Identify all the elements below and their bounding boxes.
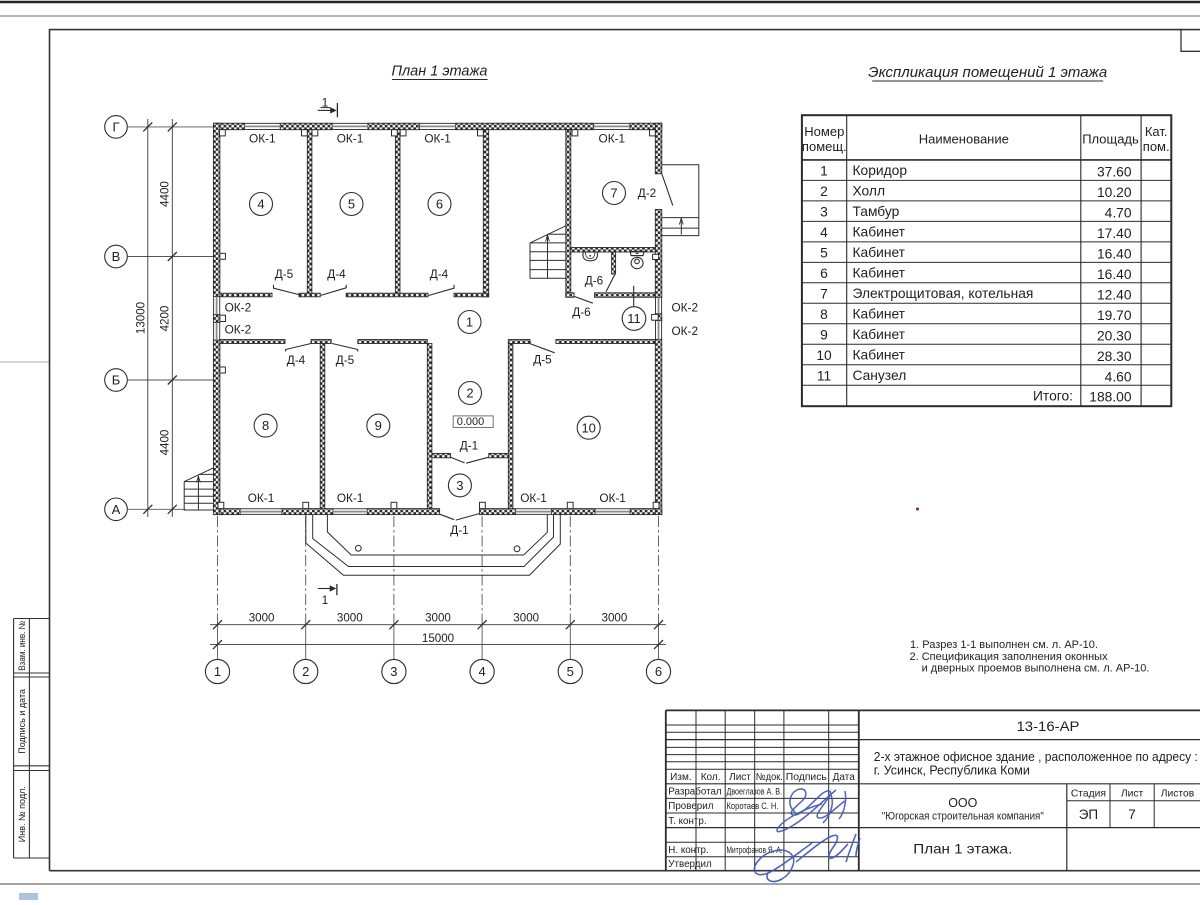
svg-text:9: 9 <box>375 418 382 433</box>
svg-text:Б: Б <box>112 373 121 388</box>
svg-text:1. Разрез 1-1 выполнен см. л.: 1. Разрез 1-1 выполнен см. л. АР-10. <box>910 639 1098 651</box>
svg-text:Кабинет: Кабинет <box>853 225 906 240</box>
svg-text:Номер: Номер <box>804 124 844 139</box>
svg-text:ОК-2: ОК-2 <box>225 323 252 337</box>
svg-text:Кол.: Кол. <box>701 772 721 783</box>
svg-text:3000: 3000 <box>513 612 539 625</box>
svg-text:Д-6: Д-6 <box>572 305 591 319</box>
svg-text:8: 8 <box>262 418 269 433</box>
svg-text:План 1 этажа: План 1 этажа <box>392 64 488 80</box>
svg-text:Митрофанов Я. А.: Митрофанов Я. А. <box>727 845 783 855</box>
svg-text:ОК-1: ОК-1 <box>520 491 547 505</box>
svg-text:2: 2 <box>820 184 828 199</box>
svg-text:5: 5 <box>567 664 574 679</box>
svg-text:3000: 3000 <box>425 612 451 625</box>
svg-text:Листов: Листов <box>1161 788 1195 799</box>
svg-text:Площадь: Площадь <box>1082 132 1139 147</box>
svg-text:Холл: Холл <box>853 184 886 199</box>
svg-text:10: 10 <box>816 348 832 363</box>
svg-text:Д-1: Д-1 <box>460 439 478 453</box>
svg-text:3000: 3000 <box>337 612 363 625</box>
svg-text:3000: 3000 <box>249 612 275 625</box>
svg-text:4400: 4400 <box>159 181 172 207</box>
svg-text:13000: 13000 <box>135 302 148 334</box>
svg-text:Экспликация помещений 1 этажа: Экспликация помещений 1 этажа <box>868 64 1107 81</box>
svg-text:16.40: 16.40 <box>1097 246 1132 261</box>
svg-text:188.00: 188.00 <box>1089 390 1132 405</box>
svg-text:4: 4 <box>257 197 264 212</box>
svg-text:4.70: 4.70 <box>1105 205 1132 220</box>
svg-text:Кабинет: Кабинет <box>853 327 906 342</box>
svg-text:Н. контр.: Н. контр. <box>668 845 708 856</box>
svg-text:15000: 15000 <box>422 632 454 645</box>
svg-text:6: 6 <box>820 266 828 281</box>
svg-text:37.60: 37.60 <box>1097 164 1132 179</box>
svg-text:Д-4: Д-4 <box>430 267 449 281</box>
svg-text:Итого:: Итого: <box>1033 388 1073 403</box>
svg-text:В: В <box>112 249 121 264</box>
svg-text:помещ.: помещ. <box>802 139 847 154</box>
svg-text:ОК-1: ОК-1 <box>337 491 364 505</box>
svg-text:Стадия: Стадия <box>1071 788 1106 799</box>
svg-text:План 1 этажа.: План 1 этажа. <box>913 840 1012 856</box>
svg-text:1: 1 <box>466 315 473 330</box>
svg-text:Инв. № подл.: Инв. № подл. <box>17 786 27 842</box>
svg-text:"Югорская строительная компани: "Югорская строительная компания" <box>882 811 1044 823</box>
svg-text:А: А <box>112 502 121 517</box>
svg-text:20.30: 20.30 <box>1097 328 1132 343</box>
svg-text:Двоеглазов А. В.: Двоеглазов А. В. <box>727 787 783 797</box>
svg-text:11: 11 <box>627 311 641 326</box>
svg-text:6: 6 <box>436 197 443 212</box>
svg-text:Подпись: Подпись <box>786 772 827 783</box>
svg-text:Дата: Дата <box>833 772 856 783</box>
svg-text:28.30: 28.30 <box>1097 349 1132 364</box>
svg-text:Взам. инв. №: Взам. инв. № <box>17 620 27 670</box>
svg-text:8: 8 <box>820 307 828 322</box>
svg-text:Д-6: Д-6 <box>585 274 604 288</box>
svg-text:Кабинет: Кабинет <box>853 307 906 322</box>
svg-text:1: 1 <box>820 164 828 179</box>
svg-text:7: 7 <box>1128 807 1136 822</box>
svg-text:Электрощитовая, котельная: Электрощитовая, котельная <box>853 286 1034 301</box>
svg-text:2: 2 <box>466 386 473 401</box>
svg-text:Д-5: Д-5 <box>275 267 294 281</box>
svg-text:4: 4 <box>478 664 485 679</box>
svg-text:17.40: 17.40 <box>1097 226 1132 241</box>
svg-text:7: 7 <box>610 186 617 201</box>
svg-text:Кабинет: Кабинет <box>853 266 906 281</box>
svg-text:19.70: 19.70 <box>1097 308 1132 323</box>
svg-text:№док.: №док. <box>756 772 783 783</box>
svg-text:г. Усинск, Республика Коми: г. Усинск, Республика Коми <box>874 763 1030 778</box>
svg-text:5: 5 <box>820 246 828 261</box>
svg-text:3: 3 <box>820 205 828 220</box>
svg-text:Подпись и дата: Подпись и дата <box>17 689 27 754</box>
svg-text:Лист: Лист <box>729 772 751 783</box>
svg-text:Изм.: Изм. <box>670 772 691 783</box>
svg-text:2. Спецификация заполнения око: 2. Спецификация заполнения оконных <box>910 651 1109 663</box>
svg-text:10.20: 10.20 <box>1097 185 1132 200</box>
svg-text:4200: 4200 <box>159 306 172 332</box>
svg-text:ОК-1: ОК-1 <box>249 132 276 146</box>
svg-text:6: 6 <box>655 664 662 679</box>
svg-text:Д-4: Д-4 <box>327 267 346 281</box>
svg-text:16.40: 16.40 <box>1097 267 1132 282</box>
svg-text:10: 10 <box>581 420 595 435</box>
svg-text:Санузел: Санузел <box>853 368 907 383</box>
svg-text:5: 5 <box>348 197 355 212</box>
svg-text:Г: Г <box>112 119 119 134</box>
svg-text:Кабинет: Кабинет <box>853 245 906 260</box>
svg-text:ОК-1: ОК-1 <box>248 491 275 505</box>
svg-text:3: 3 <box>390 664 397 679</box>
svg-text:Д-5: Д-5 <box>533 353 552 367</box>
svg-text:Д-5: Д-5 <box>336 353 355 367</box>
svg-text:Коридор: Коридор <box>853 163 908 178</box>
svg-text:ОК-2: ОК-2 <box>672 324 699 338</box>
svg-text:0.000: 0.000 <box>457 416 485 428</box>
svg-text:13-16-АР: 13-16-АР <box>1017 719 1080 734</box>
svg-text:4400: 4400 <box>159 430 172 456</box>
svg-text:3000: 3000 <box>602 612 628 625</box>
svg-text:4: 4 <box>820 225 828 240</box>
svg-text:Д-1: Д-1 <box>450 523 468 537</box>
svg-text:Д-4: Д-4 <box>287 353 306 367</box>
svg-text:Д-2: Д-2 <box>638 186 656 200</box>
svg-text:ЭП: ЭП <box>1079 807 1098 822</box>
svg-text:Тамбур: Тамбур <box>853 204 900 219</box>
svg-text:1: 1 <box>214 664 221 679</box>
svg-text:Коротаев С. Н.: Коротаев С. Н. <box>727 801 779 811</box>
svg-text:ОК-2: ОК-2 <box>225 301 252 315</box>
svg-text:ОК-1: ОК-1 <box>599 491 626 505</box>
svg-text:Кабинет: Кабинет <box>853 348 906 363</box>
svg-text:11: 11 <box>817 368 831 383</box>
svg-text:Проверил: Проверил <box>668 801 713 812</box>
svg-text:ОК-1: ОК-1 <box>424 132 451 146</box>
svg-text:1: 1 <box>322 593 329 607</box>
svg-text:Разработал: Разработал <box>668 787 722 798</box>
svg-text:и дверных проемов выполнена см: и дверных проемов выполнена см. л. АР-10… <box>922 662 1150 674</box>
svg-text:4.60: 4.60 <box>1105 369 1132 384</box>
svg-text:Кат.: Кат. <box>1145 124 1168 139</box>
svg-text:12.40: 12.40 <box>1097 287 1132 302</box>
svg-text:ОК-1: ОК-1 <box>337 132 364 146</box>
svg-text:2: 2 <box>302 664 309 679</box>
svg-text:ООО: ООО <box>948 796 977 810</box>
svg-text:Наименование: Наименование <box>919 132 1009 147</box>
svg-text:Т. контр.: Т. контр. <box>668 816 706 827</box>
svg-text:ОК-2: ОК-2 <box>672 301 699 315</box>
svg-text:Лист: Лист <box>1121 788 1144 799</box>
svg-text:9: 9 <box>820 327 828 342</box>
svg-text:7: 7 <box>820 286 828 301</box>
svg-text:1: 1 <box>322 95 329 109</box>
svg-text:3: 3 <box>456 478 463 493</box>
svg-text:Утвердил: Утвердил <box>668 859 712 870</box>
svg-text:пом.: пом. <box>1143 139 1170 154</box>
svg-text:ОК-1: ОК-1 <box>599 132 626 146</box>
